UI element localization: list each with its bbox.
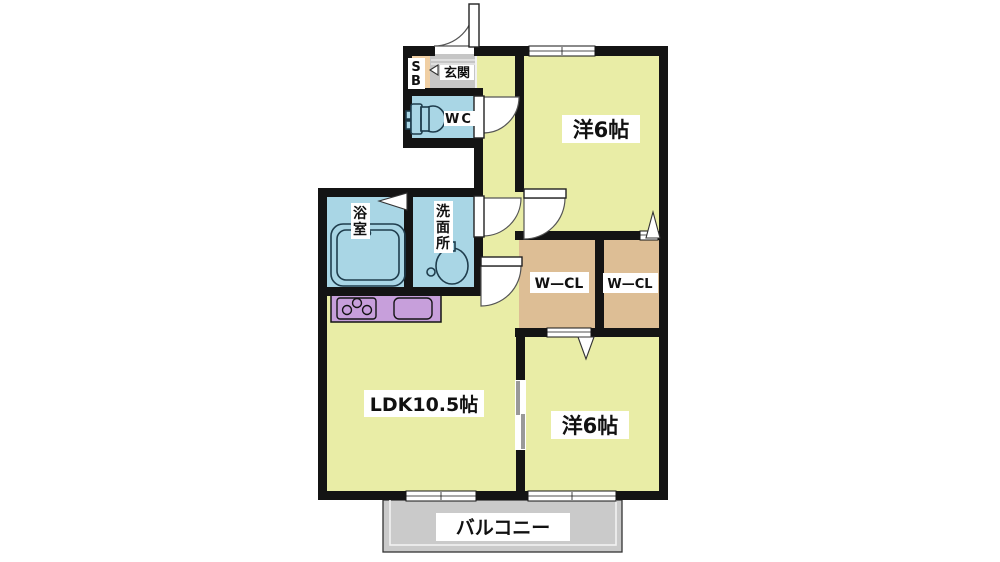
bedroom-top-label: 洋6帖 [573,118,630,142]
sliding-door-panel-2 [521,414,525,449]
entrance-door-swing [434,6,474,46]
bathroom-label-1: 浴 [353,205,368,222]
shoe-box-label-b: B [411,74,421,89]
kitchen-counter [331,294,441,322]
toilet-label: WC [445,112,473,127]
bedroom-bottom-label: 洋6帖 [562,414,619,438]
toilet-door-leaf [474,96,484,138]
sliding-door [515,380,526,450]
washroom-door-leaf [474,196,484,237]
floor-plan: S B 玄関 WC 浴 室 洗 面 所 洋6帖 W—CL W—CL LDK10.… [0,0,1000,562]
ldk-label: LDK10.5帖 [370,393,478,416]
closet-right-label: W—CL [607,277,652,292]
shoe-box-label-s: S [411,60,420,75]
washroom-label-3: 所 [436,235,450,252]
closet-left-opening [547,328,591,337]
washbasin-icon [436,248,468,284]
ldk-door-leaf [481,257,522,266]
floor-plan-page: S B 玄関 WC 浴 室 洗 面 所 洋6帖 W—CL W—CL LDK10.… [0,0,1000,562]
closet-left-label: W—CL [535,276,584,292]
entrance-door-leaf [469,4,479,47]
balcony-label: バルコニー [456,517,551,539]
bedroom-top-door-leaf [524,189,566,198]
bathroom-label-2: 室 [353,221,367,238]
washroom-label-2: 面 [436,220,450,236]
entrance-label: 玄関 [444,65,470,81]
washroom-label-1: 洗 [436,203,450,220]
sliding-door-panel-1 [516,381,520,415]
